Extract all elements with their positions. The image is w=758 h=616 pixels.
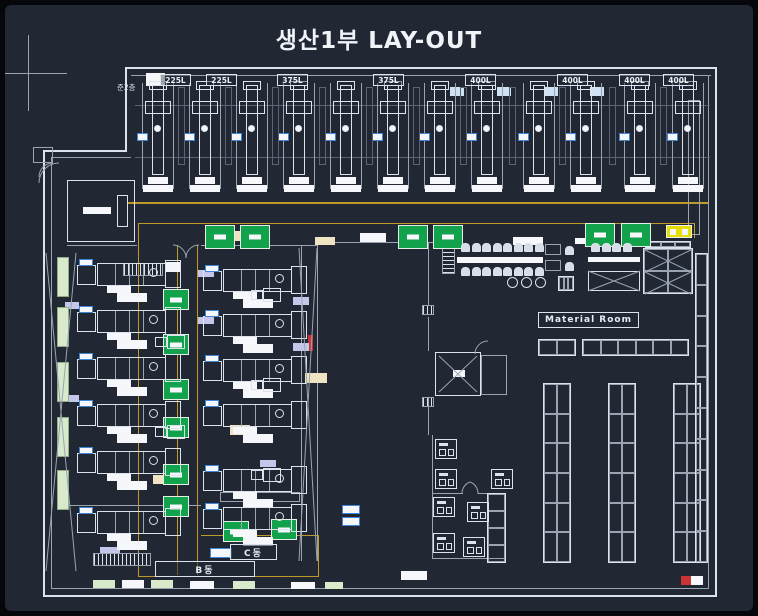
- rack-cell: [696, 500, 707, 531]
- office-chair: [623, 243, 632, 252]
- wall-line: [43, 595, 717, 597]
- bench-machine: [491, 469, 513, 489]
- machine-base: [678, 177, 698, 184]
- rack-cell: [609, 503, 622, 533]
- wall-line: [317, 245, 318, 561]
- pallet-green: [205, 225, 235, 249]
- machine-panel: [448, 479, 454, 486]
- rack-cell: [622, 414, 635, 444]
- rack-cell: [636, 340, 654, 355]
- machine-vent: [439, 443, 448, 446]
- office-chair: [591, 243, 600, 252]
- machine-hopper: [77, 265, 96, 285]
- wall-line: [51, 157, 131, 158]
- machine-hopper: [77, 359, 96, 379]
- wall-line: [428, 317, 429, 351]
- rack-cell: [488, 528, 505, 545]
- rack-cell: [696, 439, 707, 470]
- machine-base: [378, 185, 408, 192]
- office-chair: [461, 267, 470, 276]
- machine-segment: [241, 405, 242, 426]
- machine-base: [284, 185, 314, 192]
- molding-machine-vertical: [376, 81, 410, 193]
- machine-segment: [241, 315, 242, 336]
- machine-panel: [471, 512, 478, 519]
- machine-segment: [115, 405, 116, 426]
- storage-rack: [643, 248, 693, 294]
- pallet-yellow: [666, 225, 692, 238]
- aux-pump-unit: [251, 468, 281, 482]
- rack-cell: [488, 545, 505, 562]
- machine-segment: [115, 358, 116, 379]
- wall-line: [51, 588, 709, 589]
- rack-cell: [557, 503, 570, 533]
- storage-rack: [487, 493, 506, 563]
- machine-dial: [149, 315, 158, 324]
- rack-cell: [568, 277, 573, 290]
- machine-dial: [248, 125, 255, 132]
- wall-strip: [57, 307, 69, 347]
- wall-line: [433, 493, 463, 494]
- machine-control-box: [79, 447, 93, 454]
- rack-cell: [544, 473, 557, 503]
- molding-machine-vertical: [623, 81, 657, 193]
- pallet-green: [240, 225, 270, 249]
- office-chair: [524, 267, 533, 276]
- machine-foot: [107, 286, 131, 293]
- molding-machine-vertical: [235, 81, 269, 193]
- wall-line: [43, 150, 45, 597]
- hatch-block: [422, 305, 434, 315]
- fill-rect: [360, 233, 386, 242]
- machine-segment: [129, 512, 130, 533]
- machine-foot: [233, 530, 257, 537]
- machine-panel: [495, 479, 502, 486]
- machine-foot: [117, 340, 147, 349]
- machine-base: [190, 185, 220, 192]
- machine-foot: [117, 434, 147, 443]
- storage-rack: [645, 241, 691, 248]
- machine-control-box: [79, 400, 93, 407]
- pallet-slot: [670, 229, 676, 235]
- rack-cell: [557, 384, 570, 414]
- pallet-slot: [249, 235, 261, 240]
- machine-hopper: [203, 406, 222, 426]
- machine-capacity-label: 225L: [206, 74, 237, 86]
- fill-rect: [588, 257, 640, 262]
- pallet-slot: [214, 235, 226, 240]
- fill-rect: [315, 237, 335, 245]
- machine-panel: [504, 479, 510, 486]
- machine-dial: [636, 125, 643, 132]
- office-chair: [503, 243, 512, 252]
- machine-hopper: [77, 312, 96, 332]
- molding-machine-horizontal: [203, 398, 308, 438]
- machine-rail: [601, 83, 602, 189]
- machine-panel: [439, 449, 446, 456]
- machine-control-box: [231, 133, 242, 141]
- hatch-block: [442, 247, 455, 274]
- outline-rect: [545, 260, 561, 271]
- machine-panel: [446, 507, 452, 514]
- machine-control-box: [667, 133, 678, 141]
- machine-dial: [149, 268, 158, 277]
- pump-block: [155, 337, 167, 347]
- rack-cell: [674, 443, 687, 473]
- rack-cell: [609, 384, 622, 414]
- molding-machine-vertical: [329, 81, 363, 193]
- machine-dial: [275, 409, 284, 418]
- machine-segment: [129, 358, 130, 379]
- machine-panel: [437, 543, 444, 550]
- bench-machine: [435, 439, 457, 459]
- machine-control-box: [205, 310, 219, 317]
- machine-control-box: [466, 133, 477, 141]
- door-arc: [470, 482, 478, 494]
- machine-clamp: [165, 260, 181, 288]
- machine-segment: [255, 405, 256, 426]
- machine-capacity-label: 225L: [160, 74, 191, 86]
- pallet-slot: [682, 229, 688, 235]
- machine-foot: [107, 427, 131, 434]
- pallet-slot: [594, 233, 606, 238]
- molding-machine-horizontal: [77, 351, 182, 391]
- machine-foot: [107, 534, 131, 541]
- aux-pump-unit: [251, 378, 281, 392]
- machine-rail-gap: [178, 87, 185, 165]
- machine-hopper: [203, 509, 222, 529]
- machine-base: [143, 185, 173, 192]
- machine-dial: [154, 125, 161, 132]
- machine-vent: [439, 473, 448, 476]
- fill-rect: [305, 373, 327, 383]
- storage-rack: [558, 276, 574, 291]
- bench-machine: [435, 469, 457, 489]
- machine-segment: [241, 270, 242, 291]
- rack-cell: [544, 532, 557, 562]
- machine-foot: [117, 387, 147, 396]
- aux-pump-unit: [251, 288, 281, 302]
- machine-segment: [241, 470, 242, 491]
- machine-foot: [117, 293, 147, 302]
- rack-cell: [601, 340, 619, 355]
- machine-base: [477, 177, 497, 184]
- aisle-line: [197, 245, 198, 575]
- rack-cell: [696, 470, 707, 501]
- machine-base: [529, 177, 549, 184]
- rack-cell: [557, 443, 570, 473]
- machine-base: [289, 177, 309, 184]
- molding-machine-vertical: [188, 81, 222, 193]
- machine-dial: [389, 125, 396, 132]
- molding-machine-horizontal: [203, 501, 308, 541]
- machine-dial: [684, 125, 691, 132]
- machine-control-box: [278, 133, 289, 141]
- fill-rect: [190, 581, 214, 589]
- fill-rect: [93, 580, 115, 588]
- machine-rail: [554, 83, 555, 189]
- machine-foot: [107, 474, 131, 481]
- machine-foot: [243, 434, 273, 443]
- molding-machine-vertical: [282, 81, 316, 193]
- machine-segment: [115, 452, 116, 473]
- pump-block: [167, 335, 185, 349]
- machine-segment: [115, 311, 116, 332]
- pump-block: [251, 470, 263, 480]
- machine-control-box: [205, 265, 219, 272]
- wall-line: [51, 157, 52, 588]
- machine-rail: [655, 83, 656, 189]
- machine-control-box: [325, 133, 336, 141]
- pump-block: [263, 468, 281, 482]
- machine-panel: [448, 449, 454, 456]
- machine-capacity-label: 375L: [373, 74, 404, 86]
- machine-rail: [267, 83, 268, 189]
- rack-cell: [622, 503, 635, 533]
- machine-rail-gap: [413, 87, 420, 165]
- rack-cell: [674, 473, 687, 503]
- machine-foot: [243, 344, 273, 353]
- machine-segment: [129, 264, 130, 285]
- machine-base: [425, 185, 455, 192]
- machine-clamp: [291, 266, 307, 294]
- pump-block: [263, 288, 281, 302]
- machine-rail: [361, 83, 362, 189]
- rack-cell: [622, 532, 635, 562]
- pump-block: [251, 380, 263, 390]
- wall-strip: [57, 257, 69, 297]
- machine-hopper: [203, 316, 222, 336]
- aisle-line: [318, 535, 319, 577]
- machine-foot: [117, 481, 147, 490]
- rack-cell: [539, 340, 557, 355]
- wall-line: [715, 67, 717, 597]
- machine-foot: [107, 333, 131, 340]
- machine-control-box: [137, 133, 148, 141]
- machine-dial: [149, 409, 158, 418]
- machine-panel: [480, 512, 486, 519]
- molding-machine-horizontal: [77, 445, 182, 485]
- rack-cell: [544, 384, 557, 414]
- fill-rect: [453, 370, 465, 377]
- machine-rail: [502, 83, 503, 189]
- machine-base: [331, 185, 361, 192]
- machine-clamp: [291, 311, 307, 339]
- rack-cell: [668, 249, 692, 271]
- machine-control-box: [419, 133, 430, 141]
- machine-control-box: [372, 133, 383, 141]
- fill-rect: [401, 571, 427, 580]
- fill-rect: [83, 207, 111, 214]
- block-b-label: B동: [155, 561, 255, 577]
- wall-strip: [57, 470, 69, 510]
- machine-base: [383, 177, 403, 184]
- machine-dial: [275, 274, 284, 283]
- hatch-block: [93, 553, 151, 566]
- hatch-block: [422, 397, 434, 407]
- machine-segment: [255, 315, 256, 336]
- machine-base: [195, 177, 215, 184]
- pump-block: [251, 290, 263, 300]
- machine-clamp: [165, 354, 181, 382]
- machine-base: [571, 185, 601, 192]
- rack-cell: [557, 473, 570, 503]
- rack-cell: [544, 414, 557, 444]
- machine-rail-gap: [272, 87, 279, 165]
- machine-dial: [149, 456, 158, 465]
- office-chair: [535, 243, 544, 252]
- wall-line: [428, 243, 429, 305]
- bench-machine: [433, 497, 455, 517]
- office-chair: [524, 243, 533, 252]
- machine-segment: [129, 405, 130, 426]
- rack-cell: [488, 494, 505, 511]
- machine-control-box: [205, 465, 219, 472]
- machine-control-box: [184, 133, 195, 141]
- machine-segment: [143, 405, 144, 426]
- block-c-label: C동: [230, 544, 277, 560]
- machine-rail-gap: [460, 87, 467, 165]
- rack-cell: [488, 511, 505, 528]
- fill-rect: [233, 581, 255, 589]
- machine-base: [242, 177, 262, 184]
- outline-rect: [117, 195, 128, 227]
- office-chair: [482, 267, 491, 276]
- machine-rail: [314, 83, 315, 189]
- rack-cell: [609, 532, 622, 562]
- machine-foot: [107, 380, 131, 387]
- machine-base: [336, 177, 356, 184]
- machine-vent: [495, 473, 504, 476]
- cad-canvas[interactable]: 생산1부 LAY-OUT 준2층 Material Room C동 B동 225…: [5, 5, 753, 611]
- machine-clamp: [291, 401, 307, 429]
- pallet-green: [433, 225, 463, 249]
- stool: [535, 277, 546, 288]
- machine-capacity-label: 400L: [465, 74, 496, 86]
- machine-dial: [535, 125, 542, 132]
- rack-cell: [544, 443, 557, 473]
- outline-rect: [545, 244, 561, 255]
- machine-rail-gap: [559, 87, 566, 165]
- fill-rect: [325, 582, 343, 589]
- machine-segment: [269, 315, 270, 336]
- molding-machine-vertical: [522, 81, 556, 193]
- storage-rack: [582, 339, 689, 356]
- machine-clamp: [291, 504, 307, 532]
- storage-rack: [543, 383, 571, 563]
- machine-control-box: [205, 355, 219, 362]
- machine-vent: [467, 541, 476, 544]
- rack-cell: [661, 242, 676, 247]
- machine-segment: [129, 452, 130, 473]
- machine-clamp: [165, 448, 181, 476]
- office-chair: [535, 267, 544, 276]
- rack-cell: [696, 285, 707, 316]
- machine-dial: [149, 362, 158, 371]
- machine-control-box: [205, 400, 219, 407]
- rack-cell: [609, 443, 622, 473]
- machine-control-box: [79, 306, 93, 313]
- office-chair: [602, 243, 611, 252]
- rack-cell: [674, 414, 687, 444]
- office-chair: [514, 243, 523, 252]
- machine-capacity-label: 400L: [619, 74, 650, 86]
- aux-pump-unit: [155, 425, 185, 439]
- machine-capacity-label: 400L: [663, 74, 694, 86]
- rack-cell: [674, 384, 687, 414]
- machine-base: [524, 185, 554, 192]
- rack-cell: [674, 532, 687, 562]
- pump-block: [167, 425, 185, 439]
- molding-machine-vertical: [141, 81, 175, 193]
- machine-segment: [115, 264, 116, 285]
- machine-panel: [439, 479, 446, 486]
- rack-cell: [696, 377, 707, 408]
- machine-control-box: [79, 353, 93, 360]
- pallet-slot: [170, 297, 182, 302]
- rack-cell: [696, 531, 707, 562]
- blue-bin: [210, 548, 232, 558]
- machine-hopper: [77, 513, 96, 533]
- office-chair: [461, 243, 470, 252]
- machine-panel: [476, 547, 482, 554]
- wall-line: [708, 75, 709, 589]
- rack-cell: [557, 414, 570, 444]
- wall-line: [43, 150, 127, 152]
- stool: [521, 277, 532, 288]
- machine-dial: [275, 319, 284, 328]
- machine-segment: [143, 264, 144, 285]
- machine-vent: [437, 537, 446, 540]
- rack-cell: [653, 340, 671, 355]
- cad-crosshair-h: [5, 73, 67, 74]
- machine-dial: [342, 125, 349, 132]
- rack-cell: [583, 340, 601, 355]
- machine-base: [472, 185, 502, 192]
- rack-cell: [696, 254, 707, 285]
- machine-vent: [437, 501, 446, 504]
- outline-rect: [588, 271, 640, 291]
- machine-rail-gap: [609, 87, 616, 165]
- stool: [507, 277, 518, 288]
- machine-panel: [437, 507, 444, 514]
- machine-segment: [143, 452, 144, 473]
- machine-foot: [233, 427, 257, 434]
- machine-rail: [220, 83, 221, 189]
- pump-block: [155, 427, 167, 437]
- outline-rect: [481, 355, 507, 395]
- molding-machine-horizontal: [203, 308, 308, 348]
- machine-clamp: [165, 307, 181, 335]
- machine-segment: [143, 358, 144, 379]
- machine-segment: [255, 508, 256, 529]
- rack-cell: [609, 414, 622, 444]
- molding-machine-vertical: [569, 81, 603, 193]
- pallet-slot: [442, 235, 454, 240]
- machine-control-box: [619, 133, 630, 141]
- molding-machine-horizontal: [77, 257, 182, 297]
- door-arc: [39, 163, 59, 183]
- storage-rack: [695, 253, 708, 563]
- storage-rack: [538, 339, 576, 356]
- wall-strip: [57, 362, 69, 402]
- pallet-green: [398, 225, 428, 249]
- machine-base: [673, 185, 703, 192]
- machine-capacity-label: 400L: [557, 74, 588, 86]
- machine-segment: [269, 508, 270, 529]
- machine-segment: [241, 508, 242, 529]
- rack-cell: [622, 384, 635, 414]
